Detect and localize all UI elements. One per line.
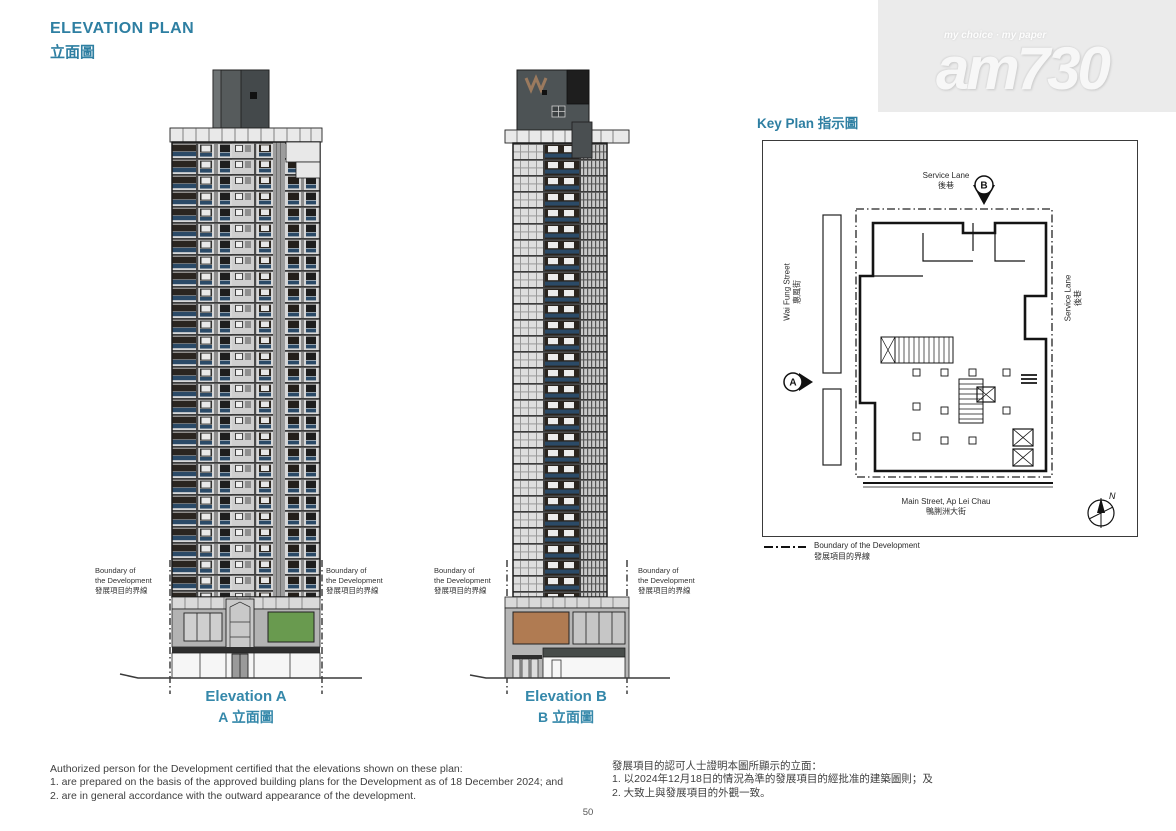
boundary-dash-sample: [762, 541, 808, 553]
elevation-b-drawing: [440, 62, 700, 702]
boundary-label-b-right: Boundary of the Development 發展項目的界線: [638, 566, 695, 595]
podium-brown-panel: [513, 612, 569, 644]
street-label-left: Wai Fung Street 惠風街: [783, 263, 804, 321]
section-marker-b: B: [973, 176, 995, 205]
tower-b-crown: [505, 130, 629, 143]
certification-notes-zh: 發展項目的認可人士證明本圖所顯示的立面： 1. 以2024年12月18日的情況為…: [612, 760, 1152, 800]
roof-grid-window: [552, 106, 565, 117]
page-title-zh: 立面圖: [50, 41, 95, 62]
tower-b-facade: [513, 122, 607, 597]
boundary-label-a-left: Boundary of the Development 發展項目的界線: [95, 566, 152, 595]
tower-b-podium: [505, 597, 629, 678]
boundary-label-b-left: Boundary of the Development 發展項目的界線: [434, 566, 491, 595]
watermark-panel: my choice · my paper am730: [878, 0, 1176, 112]
tower-a-facade: [172, 142, 320, 597]
tower-b-roof-structure: [517, 70, 589, 130]
elevation-b-caption: Elevation B B 立面圖: [466, 688, 666, 727]
north-compass-icon: N: [1088, 491, 1116, 528]
street-label-top: Service Lane 後巷: [923, 171, 970, 192]
legend-text: Boundary of the Development 發展項目的界線: [814, 541, 920, 563]
elevation-a-drawing: [100, 62, 410, 702]
tower-a-crown: [170, 128, 322, 142]
tower-a-podium: [172, 597, 320, 678]
street-label-bottom: Main Street, Ap Lei Chau 鴨脷洲大街: [902, 497, 991, 518]
street-label-right: Service Lane 後巷: [1064, 275, 1085, 322]
svg-text:N: N: [1109, 491, 1116, 501]
section-marker-a: A: [784, 373, 813, 391]
podium-green-panel: [268, 612, 314, 642]
certification-notes-en: Authorized person for the Development ce…: [50, 763, 615, 803]
brochure-page: ELEVATION PLAN 立面圖 my choice · my paper …: [0, 0, 1176, 831]
elevation-a-caption: Elevation A A 立面圖: [146, 688, 346, 727]
svg-text:B: B: [980, 181, 987, 192]
key-plan-drawing: B A N: [763, 141, 1137, 536]
am730-logo: am730: [936, 34, 1108, 103]
key-plan-legend: Boundary of the Development 發展項目的界線: [762, 541, 920, 563]
page-number: 50: [538, 807, 638, 818]
boundary-label-a-right: Boundary of the Development 發展項目的界線: [326, 566, 383, 595]
tower-a-roof-structure: [213, 70, 269, 128]
key-plan-box: B A N Service Lane 後巷 Wai Fung Street 惠風…: [762, 140, 1138, 537]
page-title-en: ELEVATION PLAN: [50, 20, 194, 38]
key-plan-title: Key Plan 指示圖: [757, 112, 858, 132]
svg-text:A: A: [789, 378, 796, 389]
